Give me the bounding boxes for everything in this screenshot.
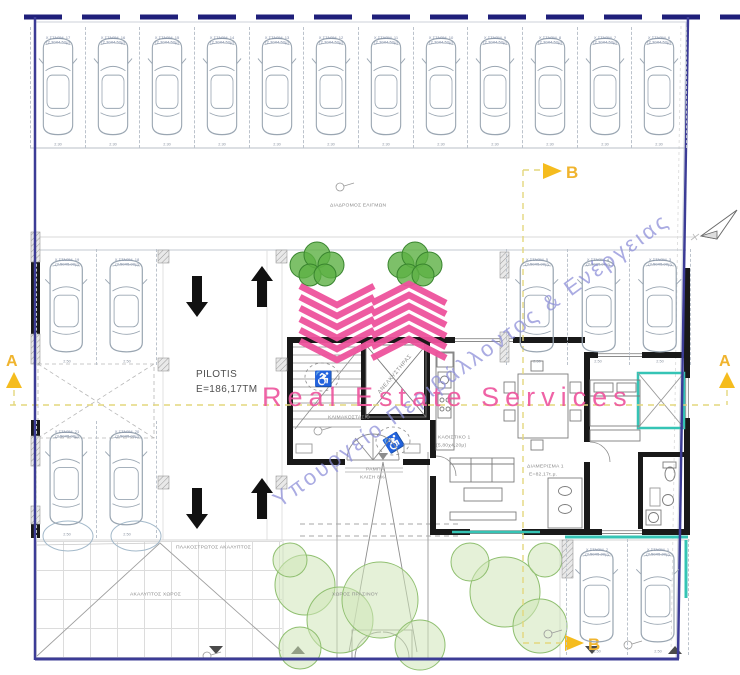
parking-stall: Χ.ΣΤΑΘΜ. 20(2,50Χ5,00μ)2.50 [96, 421, 157, 538]
brand-watermark: Real Estate Services [262, 382, 633, 413]
car-icon [36, 34, 80, 139]
stall-dim-label: 2.30 [491, 143, 498, 147]
stall-dim-label: 2.50 [656, 360, 663, 364]
stall-dim-label: 2.50 [63, 533, 70, 537]
stall-label: Χ.ΣΤΑΘΜ. 2(2,50Χ5,00μ) [567, 548, 626, 558]
parking-stall: Χ.ΣΤΑΘΜ. 11(2,30Χ4,50μ)2.30 [358, 27, 414, 148]
stall-label: Χ.ΣΤΑΘΜ. 21(2,50Χ5,00μ) [37, 430, 95, 440]
stall-label: Χ.ΣΤΑΘΜ. 10(2,30Χ4,50μ) [414, 36, 467, 46]
car-icon [255, 34, 299, 139]
ramp-label-1: ΡΑΜΠΑ [366, 466, 384, 472]
car-icon [102, 256, 150, 356]
car-icon [419, 34, 463, 139]
parking-stall: Χ.ΣΤΑΘΜ. 2(2,50Χ5,00μ)2.50 [566, 539, 628, 655]
garden-trees-icon [273, 543, 567, 670]
parking-stall: Χ.ΣΤΑΘΜ. 14(2,30Χ4,50μ)2.30 [194, 27, 250, 148]
parking-stall: Χ.ΣΤΑΘΜ. 1(2,50Χ5,00μ)2.50 [627, 539, 689, 655]
paved-open-label: ΠΛΑΚΟΣΤΡΩΤΟΣ ΑΚΑΛΥΠΤΟΣ [176, 544, 251, 550]
stall-label: Χ.ΣΤΑΘΜ. 13(2,30Χ4,50μ) [250, 36, 303, 46]
sofa [450, 458, 516, 520]
car-icon [200, 34, 244, 139]
stall-dim-label: 2.30 [382, 143, 389, 147]
parking-stall: Χ.ΣΤΑΘΜ. 10(2,30Χ4,50μ)2.30 [413, 27, 469, 148]
car-icon [572, 546, 621, 646]
stall-label: Χ.ΣΤΑΘΜ. 17(2,30Χ4,50μ) [31, 36, 84, 46]
stall-label: Χ.ΣΤΑΘΜ. 5(2,50Χ5,00μ) [507, 258, 566, 268]
ramp-label-2: ΚΛΙΣΗ 8% [360, 474, 385, 480]
stall-dim-label: 2.50 [63, 360, 70, 364]
parking-stall: Χ.ΣΤΑΘΜ. 12(2,30Χ4,50μ)2.30 [303, 27, 359, 148]
stall-label: Χ.ΣΤΑΘΜ. 1(2,50Χ5,00μ) [628, 548, 687, 558]
car-icon [309, 34, 353, 139]
stall-label: Χ.ΣΤΑΘΜ. 19(2,50Χ5,00μ) [37, 258, 95, 268]
car-icon [42, 428, 90, 529]
direction-arrows [186, 266, 273, 529]
stall-dim-label: 2.30 [437, 143, 444, 147]
stall-label: Χ.ΣΤΑΘΜ. 3(2,50Χ5,00μ) [630, 258, 689, 268]
green-space-label: ΧΩΡΟΣ ΠΡΑΣΙΝΟΥ [332, 591, 378, 597]
north-arrow-icon [701, 210, 737, 239]
parking-group-lower-left: Χ.ΣΤΑΘΜ. 21(2,50Χ5,00μ)2.50Χ.ΣΤΑΘΜ. 20(2… [36, 421, 156, 538]
svg-text:A: A [719, 353, 731, 370]
car-icon [91, 34, 135, 139]
svg-text:B: B [566, 163, 578, 182]
real-estate-logo [300, 284, 446, 360]
pilotis-title: PILOTIS [196, 368, 258, 383]
marker-a-left: A [6, 353, 22, 388]
stall-dim-label: 2.30 [54, 143, 61, 147]
parking-stall: Χ.ΣΤΑΘΜ. 21(2,50Χ5,00μ)2.50 [36, 421, 97, 538]
stall-label: Χ.ΣΤΑΘΜ. 6(2,30Χ4,50μ) [633, 36, 686, 46]
apartment-label: ΔΙΑΜΕΡΙΣΜΑ 1 [527, 463, 564, 469]
marker-b-top: B [543, 163, 578, 182]
parking-stall: Χ.ΣΤΑΘΜ. 9(2,30Χ4,50μ)2.30 [467, 27, 523, 148]
stall-label: Χ.ΣΤΑΘΜ. 9(2,30Χ4,50μ) [469, 36, 522, 46]
apartment-area-label: Ε=82,17τ.μ. [529, 471, 557, 477]
stall-label: Χ.ΣΤΑΘΜ. 7(2,30Χ4,50μ) [578, 36, 631, 46]
stall-label: Χ.ΣΤΑΘΜ. 12(2,30Χ4,50μ) [305, 36, 358, 46]
parking-stall: Χ.ΣΤΑΘΜ. 17(2,30Χ4,50μ)2.30 [30, 27, 86, 148]
stall-dim-label: 2.30 [218, 143, 225, 147]
svg-text:A: A [6, 353, 18, 370]
stall-label: Χ.ΣΤΑΘΜ. 16(2,30Χ4,50μ) [86, 36, 139, 46]
parking-group-mid-left: Χ.ΣΤΑΘΜ. 19(2,50Χ5,00μ)2.50Χ.ΣΤΑΘΜ. 18(2… [36, 249, 156, 365]
parking-stall: Χ.ΣΤΑΘΜ. 18(2,50Χ5,00μ)2.50 [96, 249, 157, 365]
living-label: ΚΑΘΙΣΤΙΚΟ 1 [438, 434, 470, 440]
car-icon [42, 256, 90, 356]
stall-dim-label: 2.30 [655, 143, 662, 147]
car-icon [473, 34, 517, 139]
stall-label: Χ.ΣΤΑΘΜ. 18(2,50Χ5,00μ) [97, 258, 155, 268]
car-icon [635, 256, 684, 356]
parking-stall: Χ.ΣΤΑΘΜ. 8(2,30Χ4,50μ)2.30 [522, 27, 578, 148]
car-icon [364, 34, 408, 139]
parking-stall: Χ.ΣΤΑΘΜ. 19(2,50Χ5,00μ)2.50 [36, 249, 97, 365]
stall-dim-label: 2.30 [601, 143, 608, 147]
stall-dim-label: 2.30 [109, 143, 116, 147]
stairwell-label: ΚΛΙΜΑΚΟΣΤΑΣΙΟ [328, 414, 370, 420]
stall-dim-label: 2.50 [533, 360, 540, 364]
parking-stall: Χ.ΣΤΑΘΜ. 15(2,30Χ4,50μ)2.30 [139, 27, 195, 148]
pilotis-area: E=186,17TM [196, 383, 258, 398]
parking-stall: Χ.ΣΤΑΘΜ. 16(2,30Χ4,50μ)2.30 [85, 27, 141, 148]
marker-a-right: A [719, 353, 735, 388]
parking-stall: Χ.ΣΤΑΘΜ. 3(2,50Χ5,00μ)2.50 [629, 249, 691, 365]
parking-group-bottom-right: Χ.ΣΤΑΘΜ. 2(2,50Χ5,00μ)2.50Χ.ΣΤΑΘΜ. 1(2,5… [566, 539, 688, 655]
stall-dim-label: 2.50 [123, 360, 130, 364]
car-icon [637, 34, 681, 139]
parking-stall: Χ.ΣΤΑΘΜ. 6(2,30Χ4,50μ)2.30 [631, 27, 687, 148]
parking-group-top-row: Χ.ΣΤΑΘΜ. 17(2,30Χ4,50μ)2.30Χ.ΣΤΑΘΜ. 16(2… [30, 27, 686, 148]
car-icon [583, 34, 627, 139]
windows [455, 337, 690, 535]
stall-dim-label: 2.30 [163, 143, 170, 147]
stall-label: Χ.ΣΤΑΘΜ. 15(2,30Χ4,50μ) [141, 36, 194, 46]
stall-dim-label: 2.50 [593, 650, 600, 654]
stall-dim-label: 2.50 [595, 360, 602, 364]
stall-label: Χ.ΣΤΑΘΜ. 11(2,30Χ4,50μ) [359, 36, 412, 46]
car-icon [102, 428, 150, 529]
planter-trees-icon [290, 242, 442, 286]
parking-stall: Χ.ΣΤΑΘΜ. 7(2,30Χ4,50μ)2.30 [577, 27, 633, 148]
driveway-label: ΔΙΑΔΡΟΜΟΣ ΕΛΙΓΜΩΝ [330, 202, 386, 208]
stall-label: Χ.ΣΤΑΘΜ. 14(2,30Χ4,50μ) [195, 36, 248, 46]
stall-dim-label: 2.30 [273, 143, 280, 147]
car-icon [145, 34, 189, 139]
pilotis-label: PILOTIS E=186,17TM [196, 368, 258, 397]
living-dims-label: (5,80χ4,20μ) [436, 442, 466, 448]
car-icon [633, 546, 682, 646]
open-space-label: ΑΚΑΛΥΠΤΟΣ ΧΩΡΟΣ [130, 591, 181, 597]
floor-plan-page: ♿ ♿ ΑΝΕΛΚΥΣΤΗΡΑΣ [0, 0, 740, 675]
stall-dim-label: 2.50 [654, 650, 661, 654]
stall-label: Χ.ΣΤΑΘΜ. 8(2,30Χ4,50μ) [523, 36, 576, 46]
stall-dim-label: 2.30 [546, 143, 553, 147]
parking-stall: Χ.ΣΤΑΘΜ. 13(2,30Χ4,50μ)2.30 [249, 27, 305, 148]
stall-dim-label: 2.30 [327, 143, 334, 147]
car-icon [528, 34, 572, 139]
stall-dim-label: 2.50 [123, 533, 130, 537]
bathroom-fixtures [646, 462, 676, 525]
stall-label: Χ.ΣΤΑΘΜ. 20(2,50Χ5,00μ) [97, 430, 155, 440]
